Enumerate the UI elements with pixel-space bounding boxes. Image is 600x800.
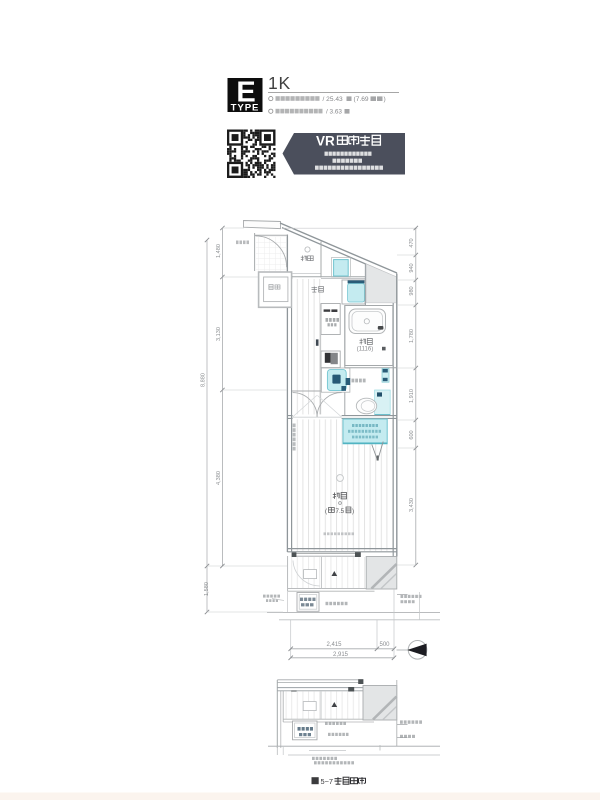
svg-text:3,430: 3,430	[409, 498, 415, 512]
svg-text:(7.69: (7.69	[354, 96, 369, 103]
svg-text:1,480: 1,480	[216, 244, 222, 258]
svg-text:VR: VR	[316, 134, 335, 149]
svg-text:1,780: 1,780	[409, 329, 415, 343]
svg-text:5~7: 5~7	[321, 777, 334, 786]
svg-text:/ 25.43: / 25.43	[323, 96, 343, 103]
svg-text:1,910: 1,910	[409, 389, 415, 403]
svg-text:940: 940	[409, 263, 415, 272]
svg-text:2,415: 2,415	[326, 642, 342, 648]
svg-text:/ 3.63: / 3.63	[326, 109, 342, 116]
svg-text:): )	[352, 508, 354, 515]
svg-text:470: 470	[409, 238, 415, 247]
svg-text:600: 600	[409, 430, 415, 439]
svg-text:2,915: 2,915	[333, 652, 349, 658]
svg-text:500: 500	[379, 642, 390, 648]
svg-text:TYPE: TYPE	[231, 103, 260, 114]
svg-text:(1116): (1116)	[357, 347, 373, 353]
svg-text:): )	[384, 96, 386, 103]
svg-text:4,380: 4,380	[216, 471, 222, 485]
svg-text:1K: 1K	[268, 73, 291, 93]
svg-text:7.5: 7.5	[336, 508, 345, 515]
svg-text:980: 980	[409, 286, 415, 295]
svg-text:1,580: 1,580	[204, 582, 210, 596]
svg-text:8,880: 8,880	[201, 373, 207, 387]
svg-text:3,130: 3,130	[216, 327, 222, 341]
